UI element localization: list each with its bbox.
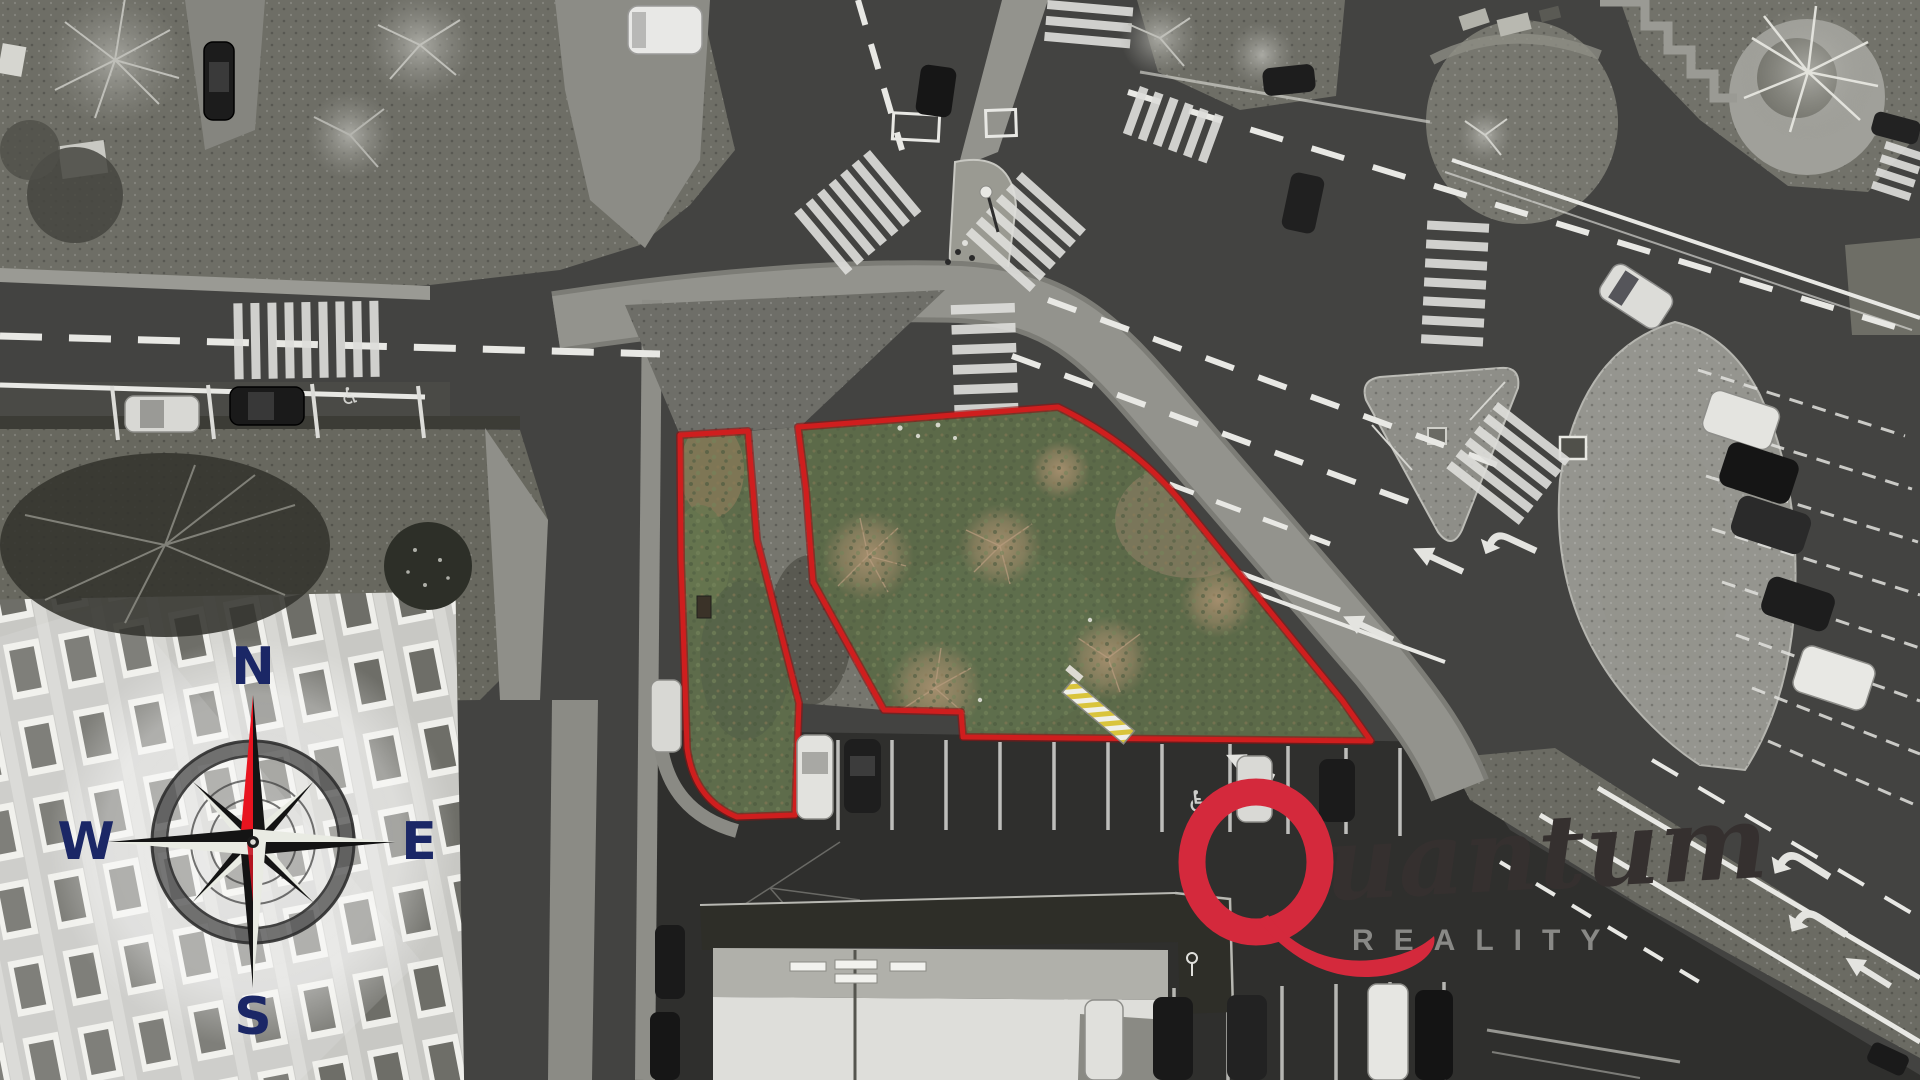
accessible-parking-symbol: ♿ bbox=[340, 384, 361, 410]
dark-car-top-left bbox=[204, 42, 234, 120]
crosswalk-left-road bbox=[233, 301, 379, 380]
crosswalk-top bbox=[1044, 0, 1133, 48]
logo-script-text: uantum bbox=[1321, 782, 1770, 925]
compass-east-label: E bbox=[401, 812, 437, 872]
logo-reality-text: REALITY bbox=[1352, 924, 1620, 957]
aerial-photo: ♿ ♿ N bbox=[0, 0, 1920, 1080]
white-van-top bbox=[628, 6, 702, 54]
compass-west-label: W bbox=[57, 812, 114, 872]
compass-south-label: S bbox=[234, 987, 271, 1047]
compass-north-label: N bbox=[231, 637, 275, 697]
compass-rose: N S W E bbox=[48, 637, 458, 1047]
aerial-photo-page: ♿ ♿ N bbox=[0, 0, 1920, 1080]
